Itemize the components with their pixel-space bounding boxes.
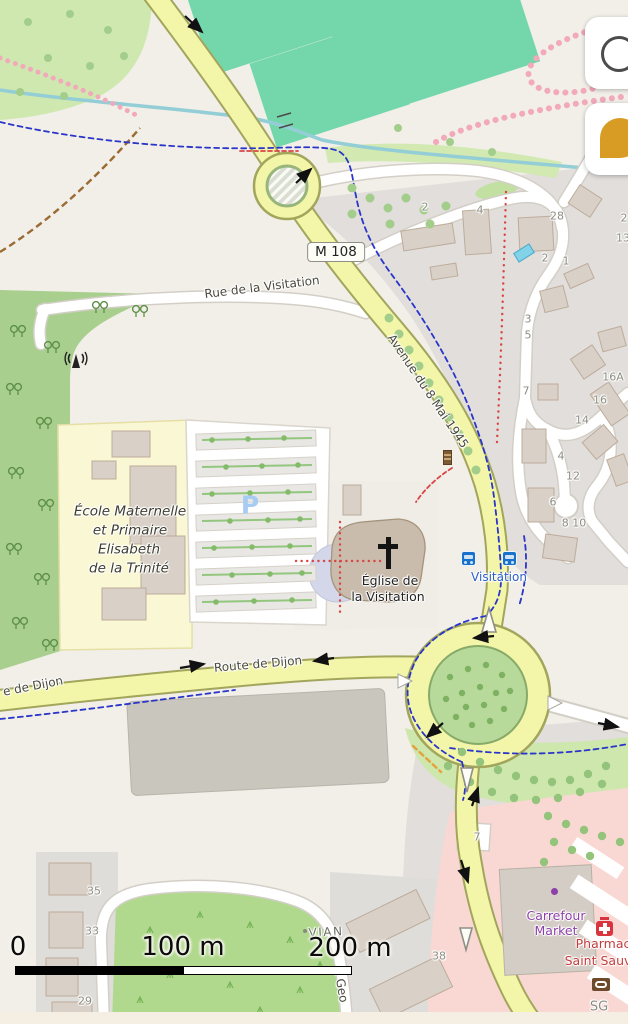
bookmark-button[interactable] [585,103,628,175]
magnifier-icon [601,36,628,72]
roundabout-small [254,153,320,219]
bus-stop-icon[interactable] [502,551,517,566]
bus-stop-icon[interactable] [461,551,476,566]
search-button[interactable] [585,17,628,89]
scale-bar-fill [16,967,184,974]
route-ref-badge: M 108 [307,242,365,262]
map-tile-edge [0,1012,628,1024]
advertising-column-icon [443,450,452,465]
poi-purple-dot [551,888,558,895]
map-canvas[interactable] [0,0,628,1024]
sg-bank-icon[interactable] [592,978,610,991]
gold-pin-icon [600,118,628,158]
church-cross-icon [377,537,399,569]
pharmacy-sign-top [600,917,609,920]
scale-bar [15,966,352,975]
pharmacy-icon[interactable] [596,921,613,936]
map-screen[interactable]: Rue de la VisitationAvenue du 8 Mai 1945… [0,0,628,1024]
hamlet-dot [303,929,307,933]
